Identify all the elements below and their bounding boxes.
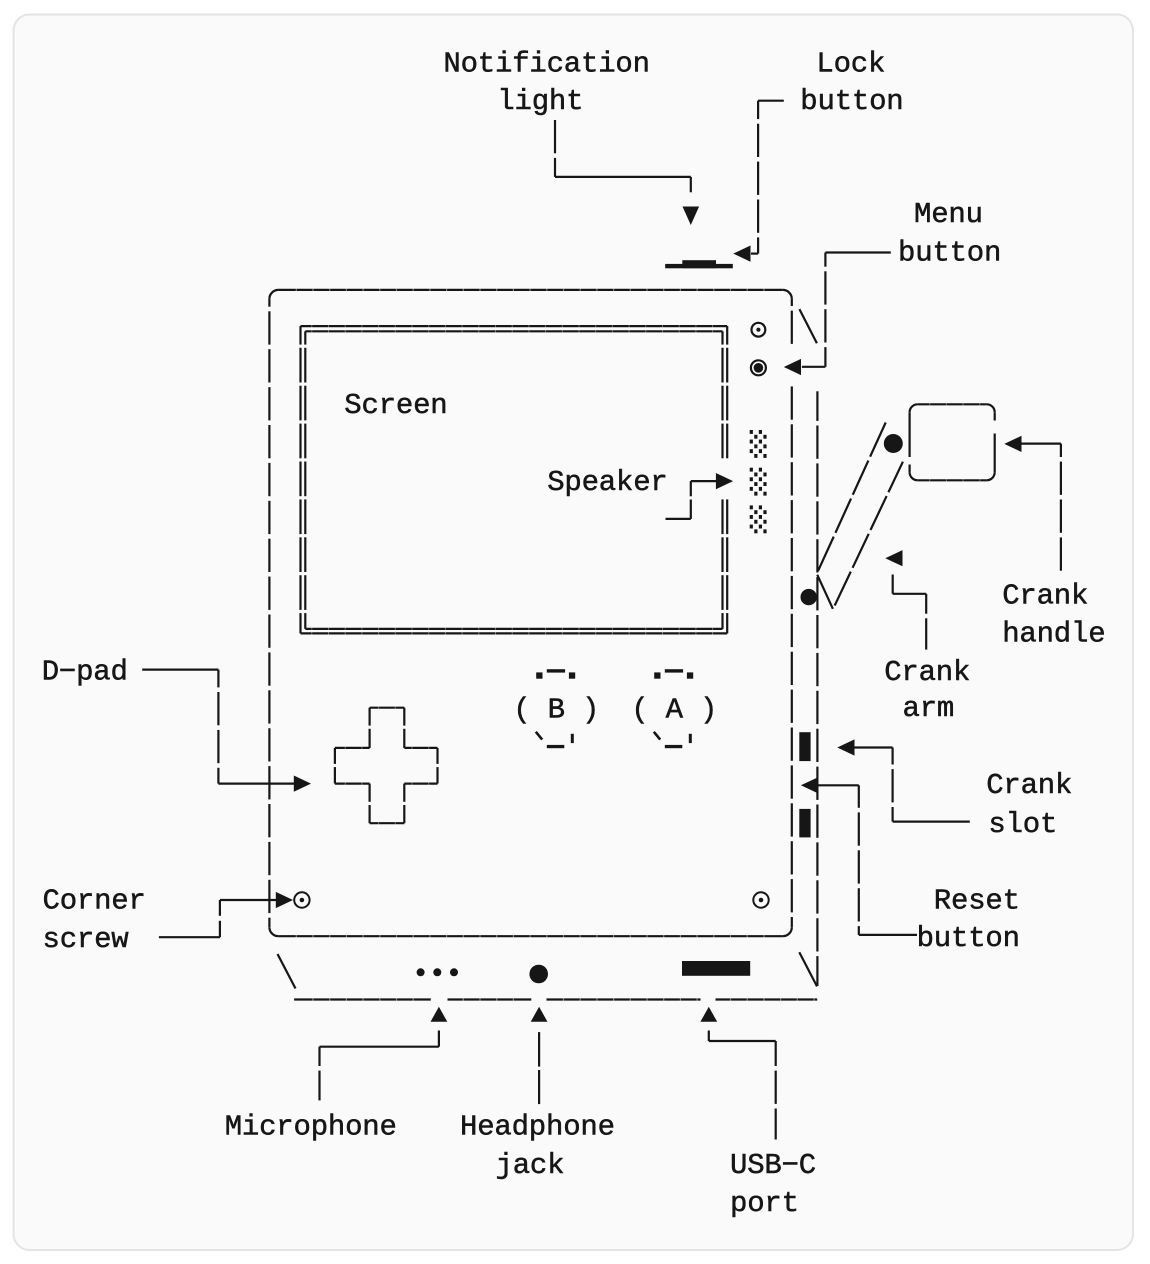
svg-text:Corner: Corner xyxy=(43,885,146,918)
svg-text:light: light xyxy=(497,85,583,118)
svg-text:Menu: Menu xyxy=(914,198,983,231)
svg-text:arm: arm xyxy=(903,692,955,725)
svg-text:Microphone: Microphone xyxy=(225,1111,397,1144)
svg-text:button: button xyxy=(898,236,1001,269)
svg-text:Crank: Crank xyxy=(884,656,970,689)
svg-text:Notification: Notification xyxy=(443,48,649,81)
svg-text:handle: handle xyxy=(1002,618,1105,651)
svg-text:Headphone: Headphone xyxy=(460,1111,615,1144)
svg-text:Speaker: Speaker xyxy=(547,466,667,499)
svg-text:Reset: Reset xyxy=(934,885,1020,918)
svg-text:button: button xyxy=(917,922,1020,955)
svg-text:Crank: Crank xyxy=(1002,579,1088,612)
svg-text:screw: screw xyxy=(43,923,130,956)
svg-text:( B ): ( B ) xyxy=(513,693,599,726)
svg-text:button: button xyxy=(800,85,903,118)
svg-text:( A ): ( A ) xyxy=(631,693,717,726)
svg-text:jack: jack xyxy=(496,1149,565,1182)
svg-text:Crank: Crank xyxy=(986,769,1072,802)
svg-text:Lock: Lock xyxy=(816,48,885,81)
svg-text:USB−C: USB−C xyxy=(730,1149,816,1182)
svg-text:Screen: Screen xyxy=(344,389,447,422)
svg-text:port: port xyxy=(730,1187,799,1220)
svg-text:D−pad: D−pad xyxy=(42,655,128,688)
svg-text:slot: slot xyxy=(988,808,1057,841)
